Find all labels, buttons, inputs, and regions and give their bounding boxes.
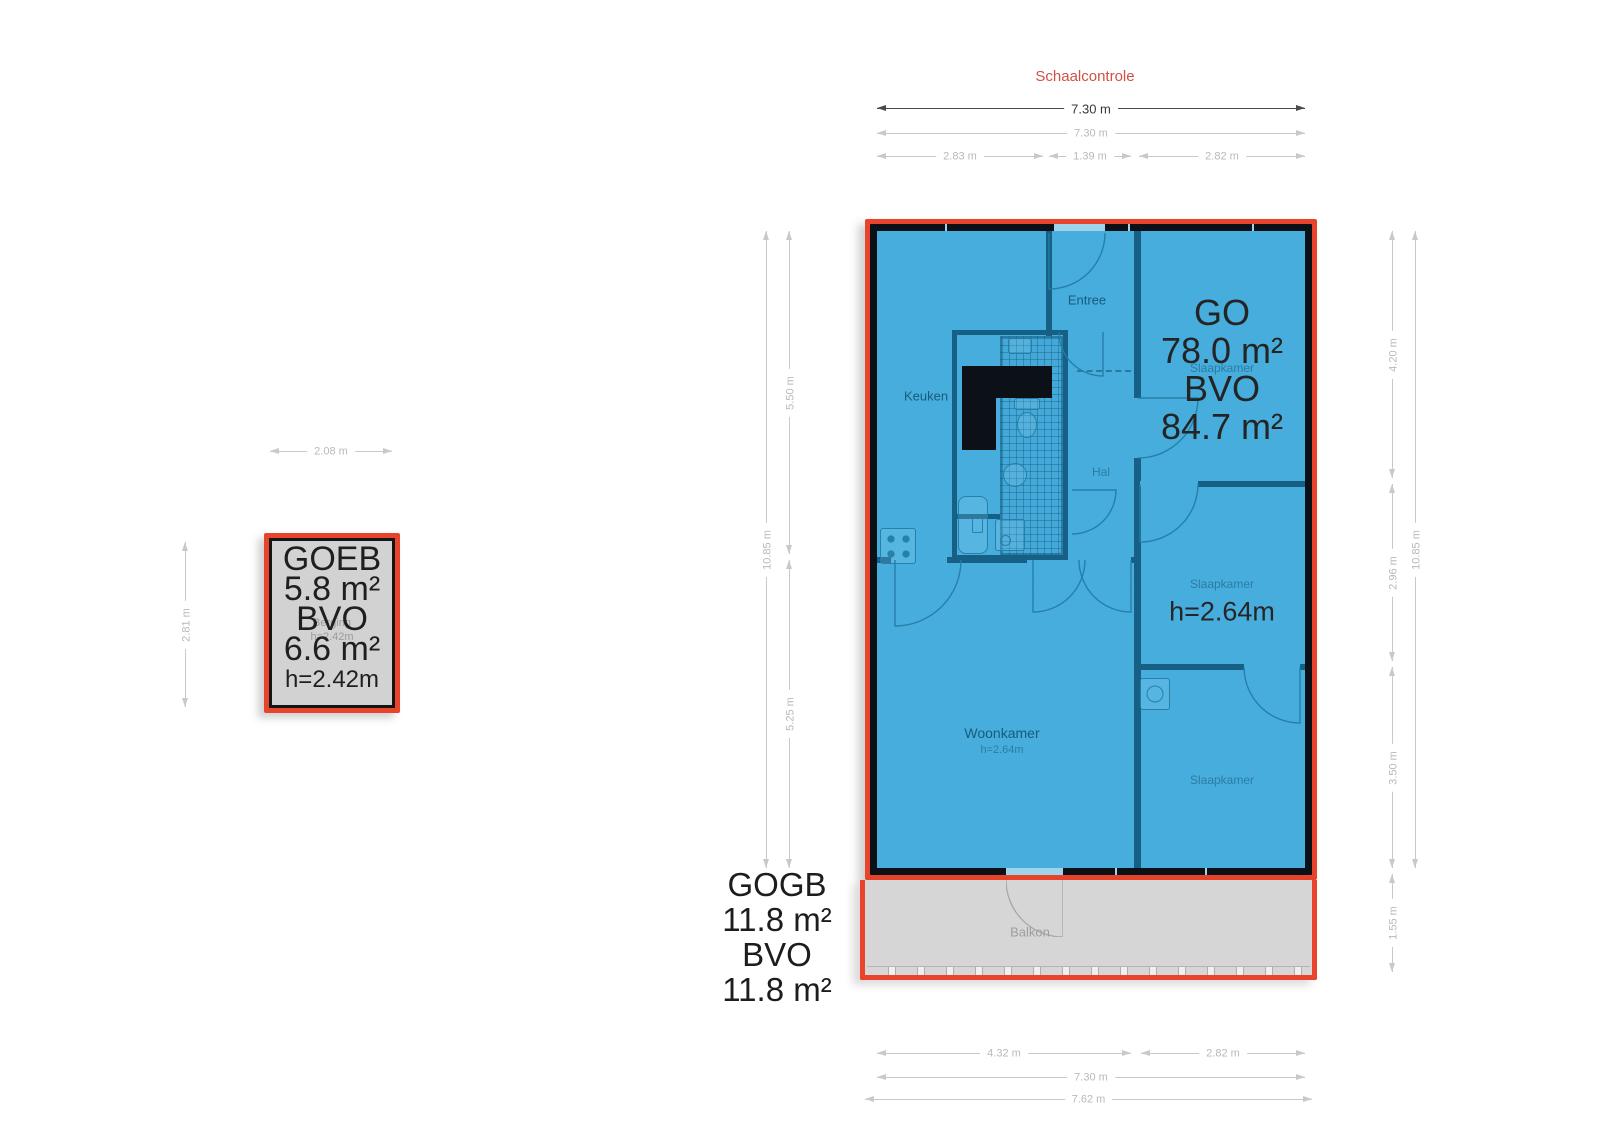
window-tick bbox=[1205, 868, 1207, 875]
round-sink-icon bbox=[1003, 463, 1027, 487]
goeb-height: h=2.42m bbox=[272, 664, 392, 696]
storage-unit-box: Berging h=2.42m GOEB 5.8 m² BVO 6.6 m² h… bbox=[264, 533, 400, 713]
dim-top-segment-2: 1.39 m bbox=[1049, 156, 1131, 157]
room-label-hal: Hal bbox=[1092, 465, 1110, 479]
washing-machine-icon bbox=[1140, 678, 1170, 710]
door-opening bbox=[1244, 664, 1300, 670]
dim-right-segment-4: 1.55 m bbox=[1392, 874, 1393, 972]
goeb-bvo-area: 6.6 m² bbox=[272, 634, 392, 664]
room-label-slaapkamer-mid: Slaapkamer bbox=[1190, 577, 1254, 591]
dim-bottom-total: 7.30 m bbox=[877, 1077, 1305, 1078]
bedroom-bottom-door-arc bbox=[1244, 667, 1300, 723]
dim-bottom-segment-2: 2.82 m bbox=[1141, 1053, 1305, 1054]
dim-label: 4.32 m bbox=[980, 1048, 1028, 1061]
ceiling-height-label: h=2.64m bbox=[1169, 597, 1275, 628]
apartment-area-text: GO 78.0 m² BVO 84.7 m² bbox=[1122, 294, 1322, 446]
dim-label: 1.55 m bbox=[1387, 899, 1400, 947]
dim-label: 7.62 m bbox=[1065, 1094, 1113, 1107]
dim-left-segment-2: 5.25 m bbox=[789, 560, 790, 868]
dim-right-total: 10.85 m bbox=[1415, 231, 1416, 868]
balcony-area-text: GOGB 11.8 m² BVO 11.8 m² bbox=[662, 867, 892, 1007]
window-tick bbox=[1252, 224, 1254, 231]
dim-left-segment-1: 5.50 m bbox=[789, 231, 790, 554]
wall-entree bbox=[1046, 231, 1052, 336]
kitchen-sink-icon bbox=[958, 496, 988, 554]
dim-right-segment-2: 2.96 m bbox=[1392, 484, 1393, 661]
dim-label: 2.83 m bbox=[936, 151, 984, 164]
dim-top-total-secondary: 7.30 m bbox=[877, 133, 1305, 134]
dim-right-segment-3: 3.50 m bbox=[1392, 667, 1393, 868]
go-area: 78.0 m² bbox=[1122, 332, 1322, 370]
bvo-label: BVO bbox=[1122, 370, 1322, 408]
room-label-entree: Entree bbox=[1068, 293, 1106, 308]
apartment-floor-area: Keuken Entree Hal Slaapkamer Slaapkamer … bbox=[877, 231, 1305, 868]
balcony-outline: Balkon bbox=[860, 880, 1317, 980]
hall-door-left-arc bbox=[1033, 560, 1085, 612]
shower-tray-icon bbox=[995, 519, 1025, 551]
dim-storage-width: 2.08 m bbox=[270, 451, 392, 452]
bvo-area: 84.7 m² bbox=[1122, 408, 1322, 446]
balcony-railing bbox=[867, 966, 1310, 975]
gogb-label: GOGB bbox=[662, 867, 892, 902]
door-opening bbox=[1140, 481, 1198, 487]
dim-label: 1.39 m bbox=[1066, 151, 1114, 164]
apartment-outline: Keuken Entree Hal Slaapkamer Slaapkamer … bbox=[865, 219, 1317, 880]
stove-icon bbox=[880, 528, 916, 564]
dim-label: 7.30 m bbox=[1067, 1072, 1115, 1085]
window-tick bbox=[945, 224, 947, 231]
window-tick bbox=[1128, 224, 1130, 231]
bathroom-door-arc bbox=[1072, 490, 1116, 534]
dim-label: 5.50 m bbox=[784, 369, 797, 417]
gogb-area: 11.8 m² bbox=[662, 902, 892, 937]
room-label-balkon: Balkon bbox=[1010, 925, 1050, 940]
dim-bottom-overall: 7.62 m bbox=[865, 1099, 1312, 1100]
entree-door-arc bbox=[1049, 233, 1105, 289]
dim-label: 10.85 m bbox=[1410, 523, 1423, 577]
washbasin-icon bbox=[1008, 338, 1032, 354]
dim-top-segment-1: 2.83 m bbox=[877, 156, 1043, 157]
scale-check-title: Schaalcontrole bbox=[985, 68, 1185, 85]
toilet-tank-icon bbox=[1014, 398, 1040, 410]
dim-label: 2.96 m bbox=[1387, 549, 1400, 597]
dim-label: 10.85 m bbox=[761, 523, 774, 577]
dim-left-total: 10.85 m bbox=[766, 231, 767, 868]
shaft-stem bbox=[962, 366, 996, 450]
storage-unit-floor: Berging h=2.42m GOEB 5.8 m² BVO 6.6 m² h… bbox=[269, 538, 395, 708]
dim-label: 2.81 m bbox=[180, 601, 193, 649]
floorplan-page: Schaalcontrole 7.30 m 7.30 m 2.83 m 1.39… bbox=[0, 0, 1600, 1131]
hall-door-right-arc bbox=[1079, 560, 1131, 612]
room-label-woonkamer: Woonkamer bbox=[964, 725, 1039, 741]
storage-area-text: GOEB 5.8 m² BVO 6.6 m² h=2.42m bbox=[272, 544, 392, 696]
dim-top-segment-3: 2.82 m bbox=[1139, 156, 1305, 157]
dim-storage-height: 2.81 m bbox=[185, 542, 186, 707]
dim-bottom-segment-1: 4.32 m bbox=[877, 1053, 1131, 1054]
dim-label: 2.08 m bbox=[307, 446, 355, 459]
dim-label: 7.30 m bbox=[1067, 128, 1115, 141]
kitchen-door-arc bbox=[895, 560, 961, 626]
dim-top-total-primary: 7.30 m bbox=[877, 108, 1305, 109]
room-label-slaapkamer-bottom: Slaapkamer bbox=[1190, 773, 1254, 787]
dim-label: 3.50 m bbox=[1387, 744, 1400, 792]
room-label-keuken: Keuken bbox=[904, 389, 948, 404]
dim-label: 5.25 m bbox=[784, 690, 797, 738]
dim-label: 4.20 m bbox=[1387, 331, 1400, 379]
go-label: GO bbox=[1122, 294, 1322, 332]
dim-label: 7.30 m bbox=[1064, 103, 1118, 116]
front-door-opening bbox=[1054, 224, 1105, 231]
balcony-door-opening bbox=[1006, 868, 1063, 875]
room-label-woonkamer-height: h=2.64m bbox=[980, 744, 1023, 756]
bedroom-mid-door-arc bbox=[1140, 484, 1198, 542]
dim-label: 2.82 m bbox=[1198, 151, 1246, 164]
window-tick bbox=[1115, 868, 1117, 875]
gogb-bvo-area: 11.8 m² bbox=[662, 972, 892, 1007]
dim-label: 2.82 m bbox=[1199, 1048, 1247, 1061]
dim-right-segment-1: 4.20 m bbox=[1392, 231, 1393, 478]
gogb-bvo-label: BVO bbox=[662, 937, 892, 972]
